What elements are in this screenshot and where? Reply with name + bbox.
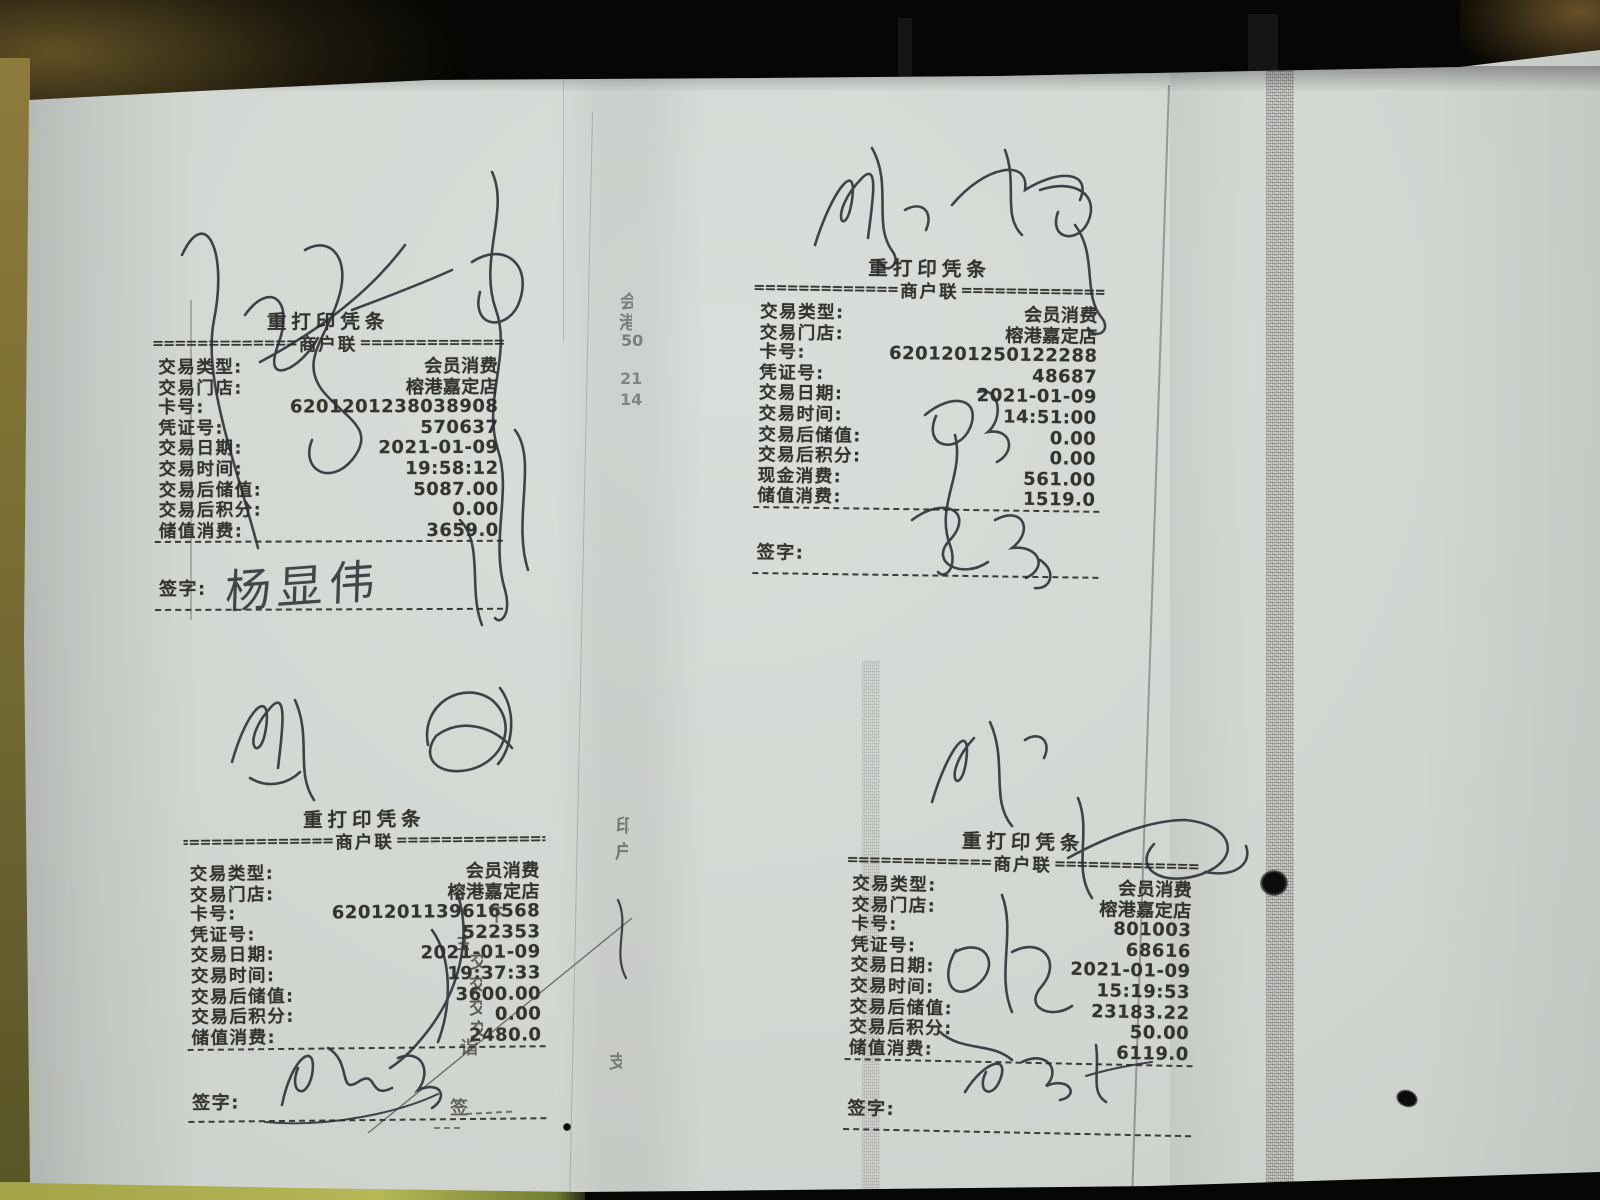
row-label: 储值消费:: [159, 517, 244, 542]
paper-sheet: 重打印凭条 ====================商户联===========…: [0, 0, 1600, 1200]
row-value: 19:37:33: [447, 962, 541, 984]
dash-run: ====================: [396, 830, 546, 848]
bleed-fragment: 诣: [460, 1034, 478, 1060]
row-value: 50.00: [1130, 1022, 1190, 1044]
row-label: 储值消费:: [191, 1024, 276, 1050]
row-value: 0.00: [495, 1003, 542, 1024]
receipt-top-left: 重打印凭条 ====================商户联===========…: [152, 297, 505, 612]
row-value: 3659.0: [426, 520, 499, 541]
ink-blot: [1260, 870, 1288, 896]
row-value: 0.00: [1050, 428, 1097, 450]
receipt-row: 储值消费:3659.0: [159, 517, 499, 539]
bleed-fragment: 签: [450, 1094, 468, 1120]
receipt-row: 交易时间:19:37:33: [191, 959, 541, 983]
row-value: 1519.0: [1023, 489, 1096, 511]
sign-label: 签字:: [192, 1089, 240, 1115]
row-value: 570637: [420, 417, 498, 438]
row-value: 19:58:12: [405, 458, 499, 479]
shadow-smudge: [898, 18, 912, 76]
separator: [843, 1128, 1191, 1137]
receipt-row: 交易日期:2021-01-09: [191, 939, 541, 963]
row-value: 6201201139616568: [332, 900, 541, 923]
bleed-dash: [434, 1127, 460, 1129]
row-value: 6201201250122288: [889, 343, 1098, 367]
row-value: 2021-01-09: [977, 385, 1097, 408]
fold-fragment: 21: [620, 369, 642, 388]
signature-row: 签字:: [751, 538, 1101, 569]
receipt-title: 重打印凭条: [183, 791, 545, 834]
receipt-row: 交易日期:2021-01-09: [158, 434, 498, 456]
dash-run: ====================: [754, 279, 898, 298]
receipt-row: 交易门店:榕港嘉定店: [190, 877, 540, 901]
dash-run: ====================: [183, 833, 333, 851]
fold-fragment: 50: [621, 331, 643, 350]
fold-fragment: 14: [620, 390, 642, 409]
shadow-smudge: [1248, 14, 1278, 74]
receipt-top-right: 重打印凭条 ====================商户联===========…: [750, 243, 1105, 579]
receipt-rows: 交易类型:会员消费交易门店:榕港嘉定店卡号:6201201139616568凭证…: [184, 856, 548, 1045]
photo-of-receipts: 重打印凭条 ====================商户联===========…: [0, 0, 1600, 1200]
signature-row: 签字:: [841, 1094, 1193, 1127]
row-value: 68616: [1126, 940, 1192, 962]
separator: [752, 572, 1098, 579]
row-value: 561.00: [1023, 469, 1096, 491]
row-value: 2021-01-09: [1070, 959, 1191, 983]
receipt-row: 储值消费:2480.0: [191, 1021, 541, 1045]
dash-run: ====================: [960, 283, 1104, 302]
receipt-row: 交易后储值:3600.00: [191, 980, 541, 1004]
bleed-fragment: 主: [456, 929, 469, 955]
row-value: 2021-01-09: [378, 437, 498, 458]
receipt-edge-line: [563, 80, 564, 342]
dash-run: ====================: [847, 851, 992, 871]
receipt-bottom-left: 重打印凭条 ====================商户联===========…: [183, 791, 548, 1123]
separator: [188, 1118, 546, 1124]
copy-label-line: ====================商户联=================…: [152, 334, 504, 353]
signature-row: 签字: 杨显伟: [153, 574, 505, 601]
sign-label: 签字:: [847, 1094, 895, 1121]
receipt-row: 交易门店:榕港嘉定店: [158, 372, 498, 394]
dash-run: ====================: [152, 335, 297, 352]
receipt-row: 交易类型:会员消费: [158, 352, 498, 374]
copy-label-line: ====================商户联=================…: [183, 830, 545, 852]
row-value: 5087.00: [413, 478, 499, 499]
row-value: 6119.0: [1116, 1042, 1189, 1065]
row-value: 801003: [1113, 919, 1192, 942]
receipt-row: 交易后储值:5087.00: [159, 475, 499, 497]
ink-blot: [1394, 1087, 1420, 1110]
copy-label: 商户联: [898, 279, 961, 302]
row-value: 48687: [1032, 366, 1097, 388]
row-label: 储值消费:: [849, 1034, 934, 1061]
handwritten-name: 杨显伟: [224, 545, 382, 623]
receipt-row: 交易时间:19:58:12: [159, 455, 499, 477]
row-value: 15:19:53: [1096, 980, 1190, 1003]
receipt-rows: 交易类型:会员消费交易门店:榕港嘉定店卡号:801003凭证号:68616交易日…: [843, 869, 1199, 1062]
receipt-title: 重打印凭条: [847, 800, 1200, 858]
row-label: 储值消费:: [757, 482, 842, 508]
receipt-bottom-right: 重打印凭条 ====================商户联===========…: [841, 800, 1200, 1138]
toner-streak: [1266, 62, 1294, 1200]
ink-blot: [563, 1123, 571, 1131]
fold-fragment: 印: [616, 812, 629, 838]
fold-fragment: 支: [609, 1048, 622, 1074]
sign-label: 签字:: [757, 538, 805, 565]
fold-fragment: 户: [615, 838, 628, 864]
receipt-title: 重打印凭条: [754, 243, 1104, 284]
row-value: 0.00: [1049, 448, 1096, 470]
row-value: 榕港嘉定店: [406, 372, 499, 398]
sign-label: 签字:: [159, 575, 207, 601]
receipt-rows: 交易类型:会员消费交易门店:榕港嘉定店卡号:6201201250122288凭证…: [751, 297, 1104, 508]
row-value: 23183.22: [1091, 1001, 1190, 1024]
receipt-rows: 交易类型:会员消费交易门店:榕港嘉定店卡号:6201201238038908凭证…: [152, 352, 505, 539]
copy-label: 商户联: [333, 830, 396, 852]
copy-label: 商户联: [297, 334, 360, 353]
fold-shading: [556, 70, 706, 1200]
row-value: 6201201238038908: [290, 396, 498, 418]
receipt-title: 重打印凭条: [152, 297, 504, 335]
dash-run: ====================: [359, 334, 504, 351]
bleed-fragment: 下: [488, 901, 506, 927]
receipt-row: 交易门店:榕港嘉定店: [760, 318, 1098, 343]
row-value: 14:51:00: [1003, 406, 1097, 428]
row-value: 0.00: [452, 499, 498, 520]
